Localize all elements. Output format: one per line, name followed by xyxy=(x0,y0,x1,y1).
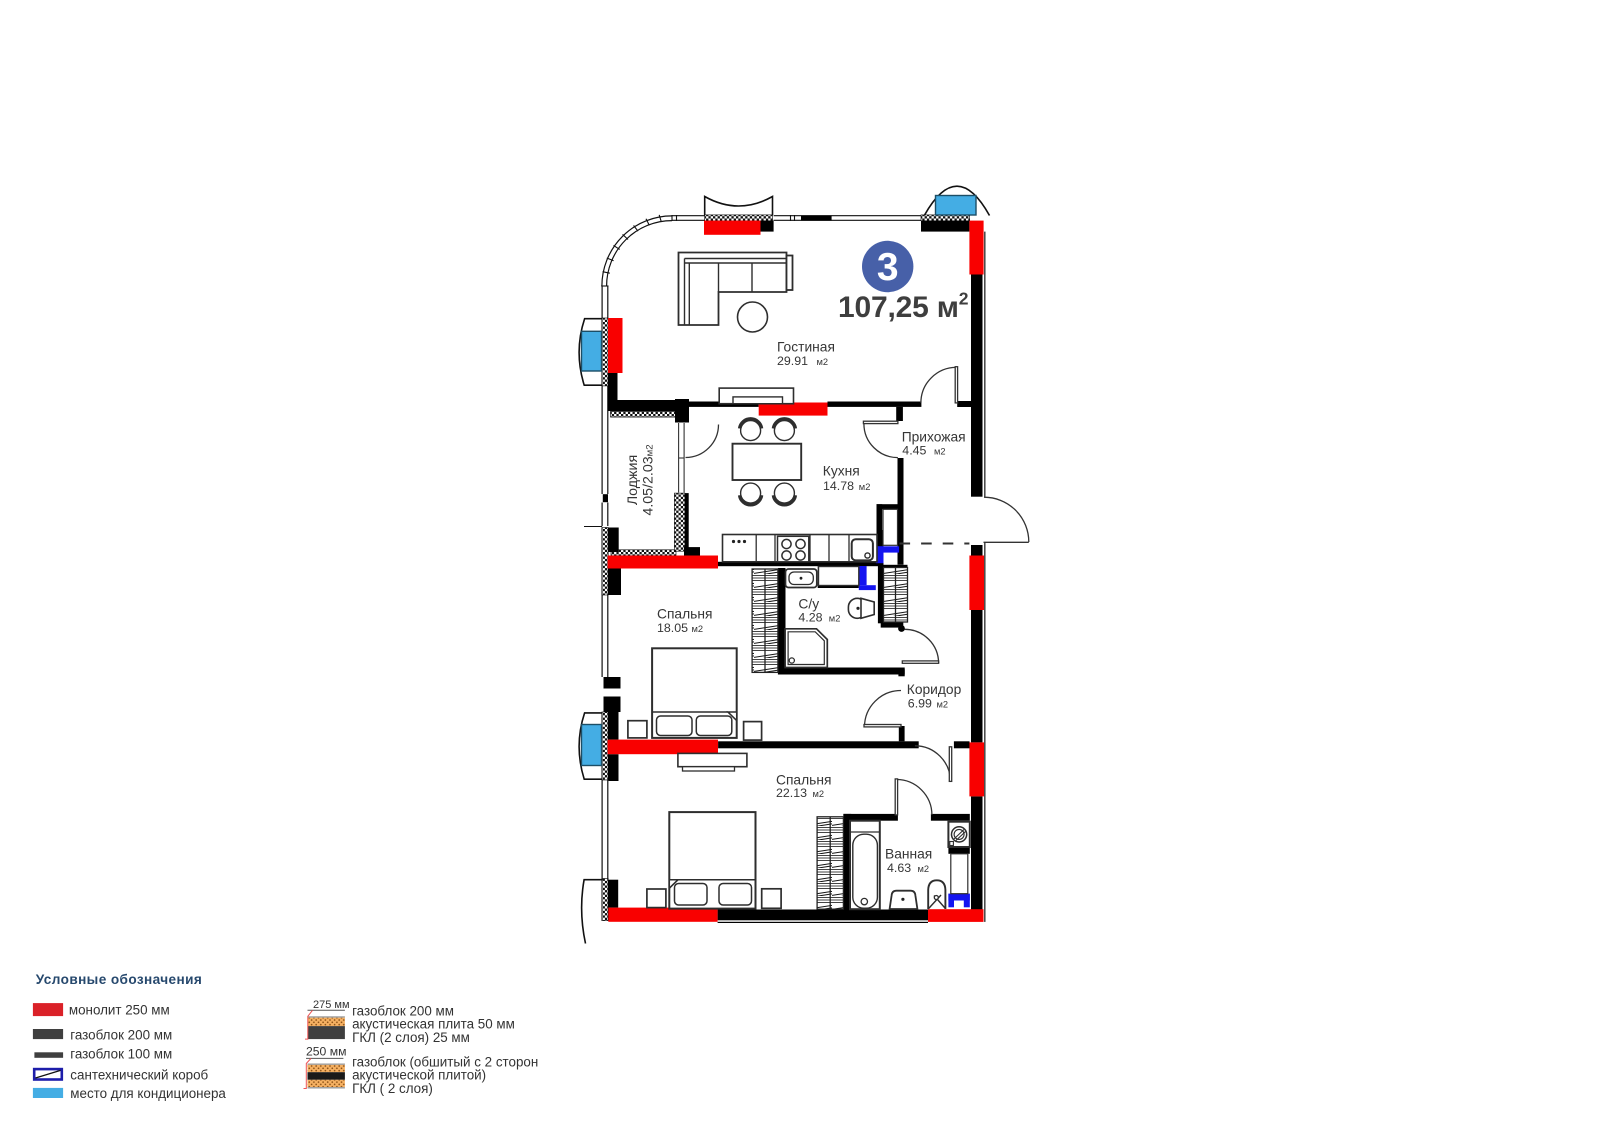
svg-text:6.99: 6.99 xyxy=(908,696,932,710)
svg-text:Прихожая: Прихожая xyxy=(902,429,966,444)
svg-text:сантехнический короб: сантехнический короб xyxy=(70,1068,208,1083)
svg-text:Коридор: Коридор xyxy=(907,682,962,697)
svg-text:4.63: 4.63 xyxy=(887,861,911,875)
svg-text:Лоджия: Лоджия xyxy=(625,455,641,505)
svg-text:место для кондиционера: место для кондиционера xyxy=(70,1086,226,1101)
svg-text:Ванная: Ванная xyxy=(885,847,932,862)
svg-text:м2: м2 xyxy=(829,613,841,623)
svg-text:275 мм: 275 мм xyxy=(313,999,350,1011)
svg-text:4.45: 4.45 xyxy=(902,443,926,457)
svg-text:м2: м2 xyxy=(817,357,829,367)
svg-text:18.05: 18.05 xyxy=(657,621,688,635)
svg-text:3: 3 xyxy=(877,246,899,289)
svg-text:газоблок 200 мм: газоблок 200 мм xyxy=(70,1028,172,1043)
svg-text:4.28: 4.28 xyxy=(798,610,822,624)
svg-text:газоблок 100 мм: газоблок 100 мм xyxy=(70,1047,172,1062)
svg-text:29.91: 29.91 xyxy=(777,354,808,368)
svg-text:монолит 250 мм: монолит 250 мм xyxy=(69,1003,170,1018)
svg-text:м2: м2 xyxy=(692,624,704,634)
svg-text:м2: м2 xyxy=(937,699,949,709)
svg-text:ГКЛ ( 2 слоя): ГКЛ ( 2 слоя) xyxy=(352,1081,433,1096)
svg-text:Условные обозначения: Условные обозначения xyxy=(36,972,202,987)
svg-text:Гостиная: Гостиная xyxy=(777,340,835,355)
svg-text:Кухня: Кухня xyxy=(823,464,860,479)
svg-text:м2: м2 xyxy=(918,864,930,874)
svg-text:250 мм: 250 мм xyxy=(306,1045,346,1059)
svg-text:107,25 м2: 107,25 м2 xyxy=(838,289,969,325)
svg-text:22.13: 22.13 xyxy=(776,786,807,800)
svg-text:м2: м2 xyxy=(934,446,946,456)
svg-text:м2: м2 xyxy=(859,482,871,492)
svg-text:С/у: С/у xyxy=(798,596,819,611)
svg-text:14.78: 14.78 xyxy=(823,479,854,493)
svg-text:м2: м2 xyxy=(813,789,825,799)
svg-text:ГКЛ (2 слоя) 25 мм: ГКЛ (2 слоя) 25 мм xyxy=(352,1030,470,1045)
svg-text:Спальня: Спальня xyxy=(657,607,712,622)
